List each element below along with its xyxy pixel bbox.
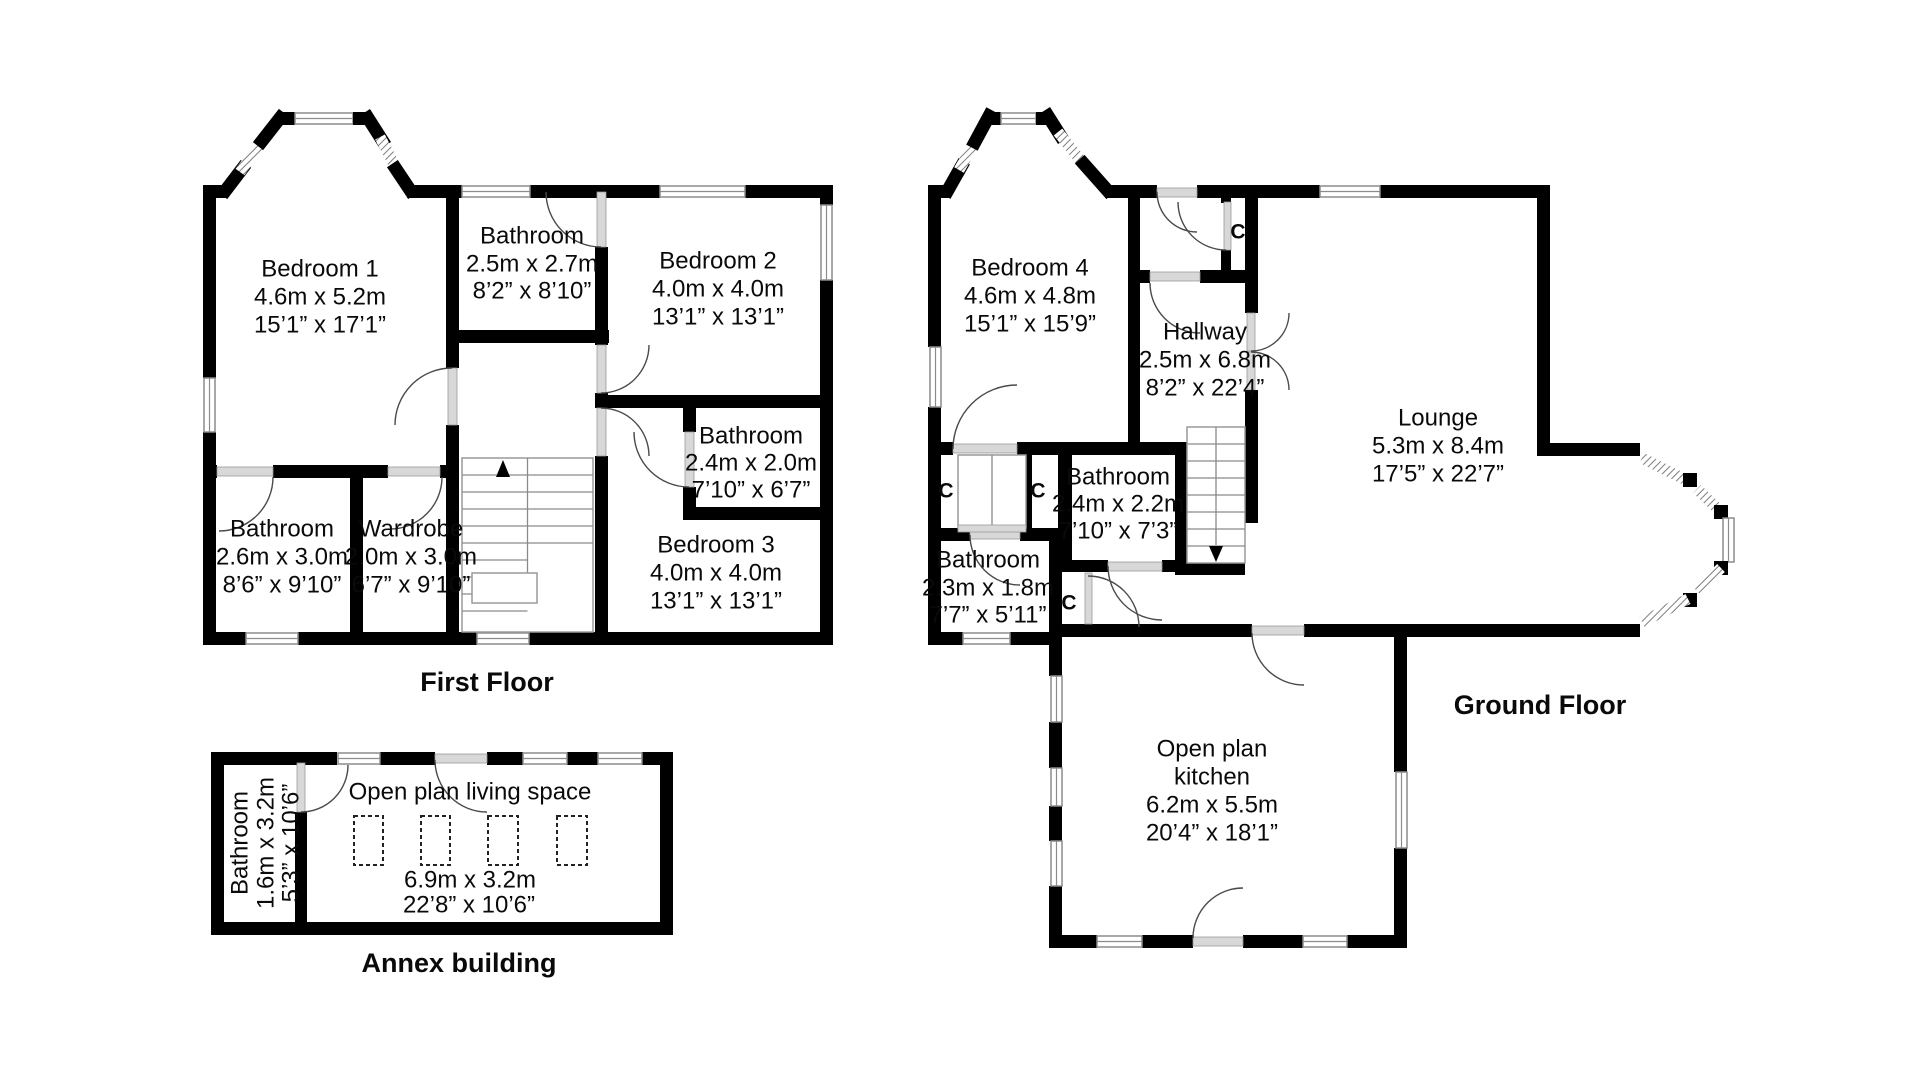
gf-bathroom-left-metric: 2.3m x 1.8m	[922, 574, 1054, 601]
gf-kitchen-name-line2: kitchen	[1174, 763, 1250, 790]
gf-hallway-name: Hallway	[1163, 318, 1247, 345]
ff-bathroom-left-name: Bathroom	[230, 515, 334, 542]
gf-bay-window	[948, 112, 1107, 190]
annex-bathroom-metric: 1.6m x 3.2m	[252, 777, 279, 909]
gf-bathroom-middle-name: Bathroom	[1066, 463, 1170, 490]
ff-wardrobe-imperial: 6’7” x 9’10”	[352, 571, 471, 598]
annex-rooflights	[354, 816, 587, 865]
gf-bow-window	[1642, 458, 1734, 622]
first-floor-plan: Bedroom 1 4.6m x 5.2m 15’1” x 17’1” Bath…	[203, 112, 833, 697]
gf-bathroom-left-imperial: 7’7” x 5’11”	[930, 601, 1047, 628]
ff-bedroom3-metric: 4.0m x 4.0m	[650, 559, 782, 586]
first-floor-title: First Floor	[420, 667, 554, 697]
annex-living-imperial: 22’8” x 10’6”	[403, 891, 535, 918]
ff-bathroom-top-name: Bathroom	[480, 222, 584, 249]
gf-closet-label-left: C	[938, 480, 953, 503]
ff-bedroom3-imperial: 13’1” x 13’1”	[650, 587, 782, 614]
ground-floor-plan: Bedroom 4 4.6m x 4.8m 15’1” x 15’9” Hall…	[922, 112, 1734, 948]
ff-bedroom3-name: Bedroom 3	[657, 531, 774, 558]
gf-closet-label-right: C	[1030, 480, 1045, 503]
ff-bathroom-middle-imperial: 7’10” x 6’7”	[692, 476, 811, 503]
gf-lounge-metric: 5.3m x 8.4m	[1372, 432, 1504, 459]
ff-bay-window	[226, 112, 410, 190]
annex-title: Annex building	[362, 948, 557, 978]
gf-bathroom-left-name: Bathroom	[936, 546, 1040, 573]
ff-bathroom-left-imperial: 8’6” x 9’10”	[223, 571, 342, 598]
gf-lounge-imperial: 17’5” x 22’7”	[1372, 460, 1504, 487]
gf-cupboard	[958, 455, 1026, 532]
annex-bathroom-name: Bathroom	[226, 791, 253, 895]
ff-wardrobe-metric: 2.0m x 3.0m	[345, 543, 477, 570]
ff-bedroom1-name: Bedroom 1	[261, 255, 378, 282]
annex-plan: Open plan living space 6.9m x 3.2m 22’8”…	[211, 752, 673, 978]
gf-kitchen-imperial: 20’4” x 18’1”	[1146, 819, 1278, 846]
gf-bedroom4-metric: 4.6m x 4.8m	[964, 282, 1096, 309]
annex-labels: Open plan living space 6.9m x 3.2m 22’8”…	[226, 777, 591, 978]
ff-bathroom-middle-metric: 2.4m x 2.0m	[685, 449, 817, 476]
ff-bathroom-left-metric: 2.6m x 3.0m	[216, 543, 348, 570]
gf-stairs	[1187, 427, 1245, 563]
annex-living-name: Open plan living space	[349, 778, 592, 805]
ff-bedroom2-name: Bedroom 2	[659, 247, 776, 274]
gf-closet-label-bottom: C	[1061, 592, 1076, 615]
gf-hallway-metric: 2.5m x 6.8m	[1139, 346, 1271, 373]
ff-bathroom-top-metric: 2.5m x 2.7m	[466, 250, 598, 277]
ground-floor-title: Ground Floor	[1454, 690, 1627, 720]
gf-hallway-imperial: 8’2” x 22’4”	[1146, 374, 1265, 401]
gf-bathroom-middle-imperial: 7’10” x 7’3”	[1059, 517, 1178, 544]
gf-bathroom-middle-metric: 2.4m x 2.2m	[1052, 490, 1184, 517]
gf-closet-label-top: C	[1230, 221, 1245, 244]
floorplan-drawing: Bedroom 1 4.6m x 5.2m 15’1” x 17’1” Bath…	[0, 0, 1920, 1080]
annex-living-metric: 6.9m x 3.2m	[404, 866, 536, 893]
gf-lounge-name: Lounge	[1398, 404, 1478, 431]
ff-wardrobe-name: Wardrobe	[359, 515, 463, 542]
floorplan-page: Bedroom 1 4.6m x 5.2m 15’1” x 17’1” Bath…	[0, 0, 1920, 1080]
ff-bedroom1-metric: 4.6m x 5.2m	[254, 283, 386, 310]
ff-bedroom2-metric: 4.0m x 4.0m	[652, 275, 784, 302]
annex-bathroom-imperial: 5’3” x 10’6”	[277, 784, 304, 903]
ff-bedroom1-imperial: 15’1” x 17’1”	[254, 311, 386, 338]
ff-bathroom-middle-name: Bathroom	[699, 422, 803, 449]
ff-stairs	[462, 458, 593, 632]
gf-kitchen-name-line1: Open plan	[1157, 735, 1268, 762]
gf-bedroom4-name: Bedroom 4	[971, 254, 1088, 281]
gf-kitchen-metric: 6.2m x 5.5m	[1146, 791, 1278, 818]
gf-bedroom4-imperial: 15’1” x 15’9”	[964, 310, 1096, 337]
ff-bedroom2-imperial: 13’1” x 13’1”	[652, 303, 784, 330]
ff-bathroom-top-imperial: 8’2” x 8’10”	[473, 277, 592, 304]
